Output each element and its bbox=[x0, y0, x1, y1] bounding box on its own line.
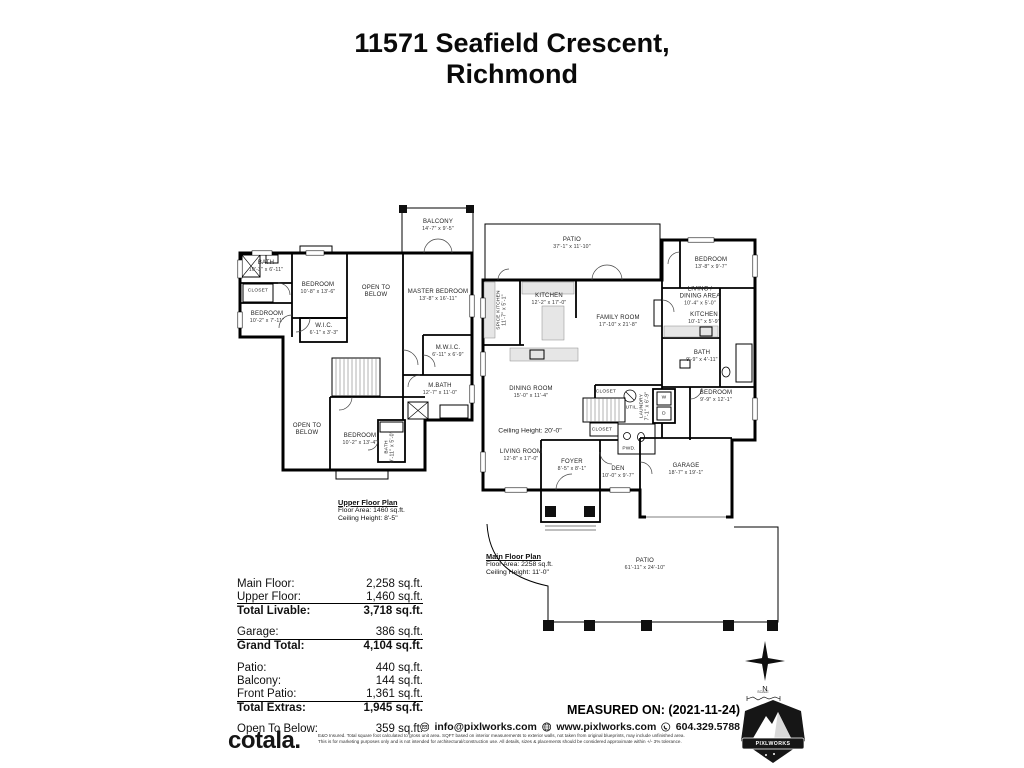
room-label-bedroom4: BEDROOM 10'-2" x 13'-4" bbox=[343, 433, 378, 447]
main-plan-title: Main Floor Plan bbox=[486, 553, 553, 561]
summary-row-patio: Patio:440 sq.ft. bbox=[237, 661, 423, 674]
room-label-bedroom-suite-top: BEDROOM 13'-8" x 9'-7" bbox=[695, 257, 727, 271]
room-label-closet-small: CLOSET bbox=[592, 427, 612, 433]
room-label-closet-hall: CLOSET bbox=[596, 389, 616, 395]
room-label-open-to-below-2: OPEN TO BELOW bbox=[291, 423, 323, 437]
room-label-kitchen-suite: KITCHEN 10'-1" x 5'-9" bbox=[688, 312, 720, 326]
room-label-util: UTIL. bbox=[626, 405, 639, 411]
room-label-master-bedroom: MASTER BEDROOM 13'-8" x 16'-11" bbox=[408, 289, 468, 303]
room-label-den: DEN 10'-0" x 9'-7" bbox=[602, 466, 634, 480]
summary-row-balcony: Balcony:144 sq.ft. bbox=[237, 674, 423, 687]
area-summary: Main Floor:2,258 sq.ft. Upper Floor:1,46… bbox=[237, 577, 423, 736]
room-label-bath-upper: BATH 10'-3" x 6'-11" bbox=[249, 260, 284, 274]
room-label-wic: W.I.C. 6'-1" x 3'-3" bbox=[310, 323, 339, 337]
room-label-closet-upper: CLOSET bbox=[248, 288, 268, 294]
floor-plan-drawing bbox=[0, 0, 1024, 768]
scale-label: SCALE bbox=[757, 690, 768, 694]
main-plan-ceiling: Ceiling Height: 11'-0" bbox=[486, 569, 553, 577]
dryer-label: D bbox=[662, 411, 666, 417]
upper-plan-area: Floor Area: 1460 sq.ft. bbox=[338, 507, 405, 515]
summary-row-main-floor: Main Floor:2,258 sq.ft. bbox=[237, 577, 423, 590]
room-label-foyer: FOYER 8'-5" x 8'-1" bbox=[558, 459, 587, 473]
summary-row-total-livable: Total Livable:3,718 sq.ft. bbox=[237, 603, 423, 617]
room-label-laundry: LAUNDRY 7'-1" x 6'-9" bbox=[640, 392, 651, 421]
room-label-bath-suite: BATH 9'-9" x 4'-11" bbox=[686, 350, 717, 364]
room-label-bedroom-suite-lower: BEDROOM 9'-9" x 12'-1" bbox=[700, 390, 732, 404]
room-label-bath2-upper: BATH 9'-11" x 5'-0" bbox=[385, 431, 396, 462]
room-label-family-room: FAMILY ROOM 17'-10" x 21'-8" bbox=[596, 315, 639, 329]
pixlworks-logo-badge bbox=[741, 700, 805, 763]
room-label-dining-room: DINING ROOM 15'-0" x 11'-4" bbox=[509, 386, 553, 400]
room-label-spice-kitchen: SPICE KITCHEN 11'-7" x 5'-1" bbox=[497, 290, 508, 329]
main-plan-caption: Main Floor Plan Floor Area: 2258 sq.ft. … bbox=[486, 553, 553, 578]
room-label-mwic: M.W.I.C. 6'-11" x 6'-9" bbox=[432, 345, 463, 359]
room-label-kitchen-main: KITCHEN 12'-2" x 17'-0" bbox=[532, 293, 567, 307]
cotala-logo: cotala. bbox=[228, 727, 301, 755]
summary-row-total-extras: Total Extras:1,945 sq.ft. bbox=[237, 701, 423, 715]
measured-on-text: MEASURED ON: (2021-11-24) bbox=[540, 703, 740, 717]
room-label-bedroom3: BEDROOM 10'-2" x 7'-11" bbox=[250, 311, 285, 325]
room-label-balcony: BALCONY 14'-7" x 9'-5" bbox=[422, 219, 454, 233]
room-label-patio-top: PATIO 37'-1" x 11'-10" bbox=[553, 237, 591, 251]
summary-row-front-patio: Front Patio:1,361 sq.ft. bbox=[237, 687, 423, 700]
ceiling-height-note: Ceiling Height: 20'-0" bbox=[498, 428, 561, 435]
summary-row-upper-floor: Upper Floor:1,460 sq.ft. bbox=[237, 590, 423, 603]
room-label-mbath: M.BATH 12'-7" x 11'-0" bbox=[423, 383, 458, 397]
phone-icon bbox=[661, 721, 670, 733]
room-label-pwd: PWD. bbox=[622, 446, 635, 452]
contact-row: info@pixlworks.com www.pixlworks.com 604… bbox=[420, 721, 740, 733]
phone-text: 604.329.5788 bbox=[676, 721, 740, 733]
upper-plan-caption: Upper Floor Plan Floor Area: 1460 sq.ft.… bbox=[338, 499, 405, 524]
upper-plan-ceiling: Ceiling Height: 8'-5" bbox=[338, 515, 405, 523]
washer-label: W bbox=[662, 395, 667, 401]
compass-icon bbox=[745, 641, 785, 681]
website-text: www.pixlworks.com bbox=[556, 721, 656, 733]
pixlworks-logo-text: PIXLWORKS bbox=[742, 741, 804, 747]
room-label-patio-bottom: PATIO 61'-11" x 24'-10" bbox=[625, 558, 666, 572]
scale-bar bbox=[747, 696, 780, 701]
room-label-open-to-below-1: OPEN TO BELOW bbox=[360, 285, 392, 299]
main-plan-area: Floor Area: 2258 sq.ft. bbox=[486, 561, 553, 569]
email-text: info@pixlworks.com bbox=[434, 721, 536, 733]
room-label-living-dining: LIVING / DINING AREA 10'-4" x 5'-0" bbox=[676, 287, 724, 308]
room-label-bedroom2: BEDROOM 10'-8" x 13'-6" bbox=[301, 282, 336, 296]
room-label-garage: GARAGE 18'-7" x 19'-1" bbox=[669, 463, 704, 477]
floor-plan-page: 11571 Seafield Crescent, Richmond bbox=[0, 0, 1024, 768]
email-icon bbox=[420, 721, 429, 733]
summary-row-garage: Garage:386 sq.ft. bbox=[237, 626, 423, 639]
summary-row-grand-total: Grand Total:4,104 sq.ft. bbox=[237, 639, 423, 653]
room-label-living-room: LIVING ROOM 12'-8" x 17'-0" bbox=[500, 449, 542, 463]
globe-icon bbox=[542, 721, 551, 733]
upper-plan-title: Upper Floor Plan bbox=[338, 499, 405, 507]
